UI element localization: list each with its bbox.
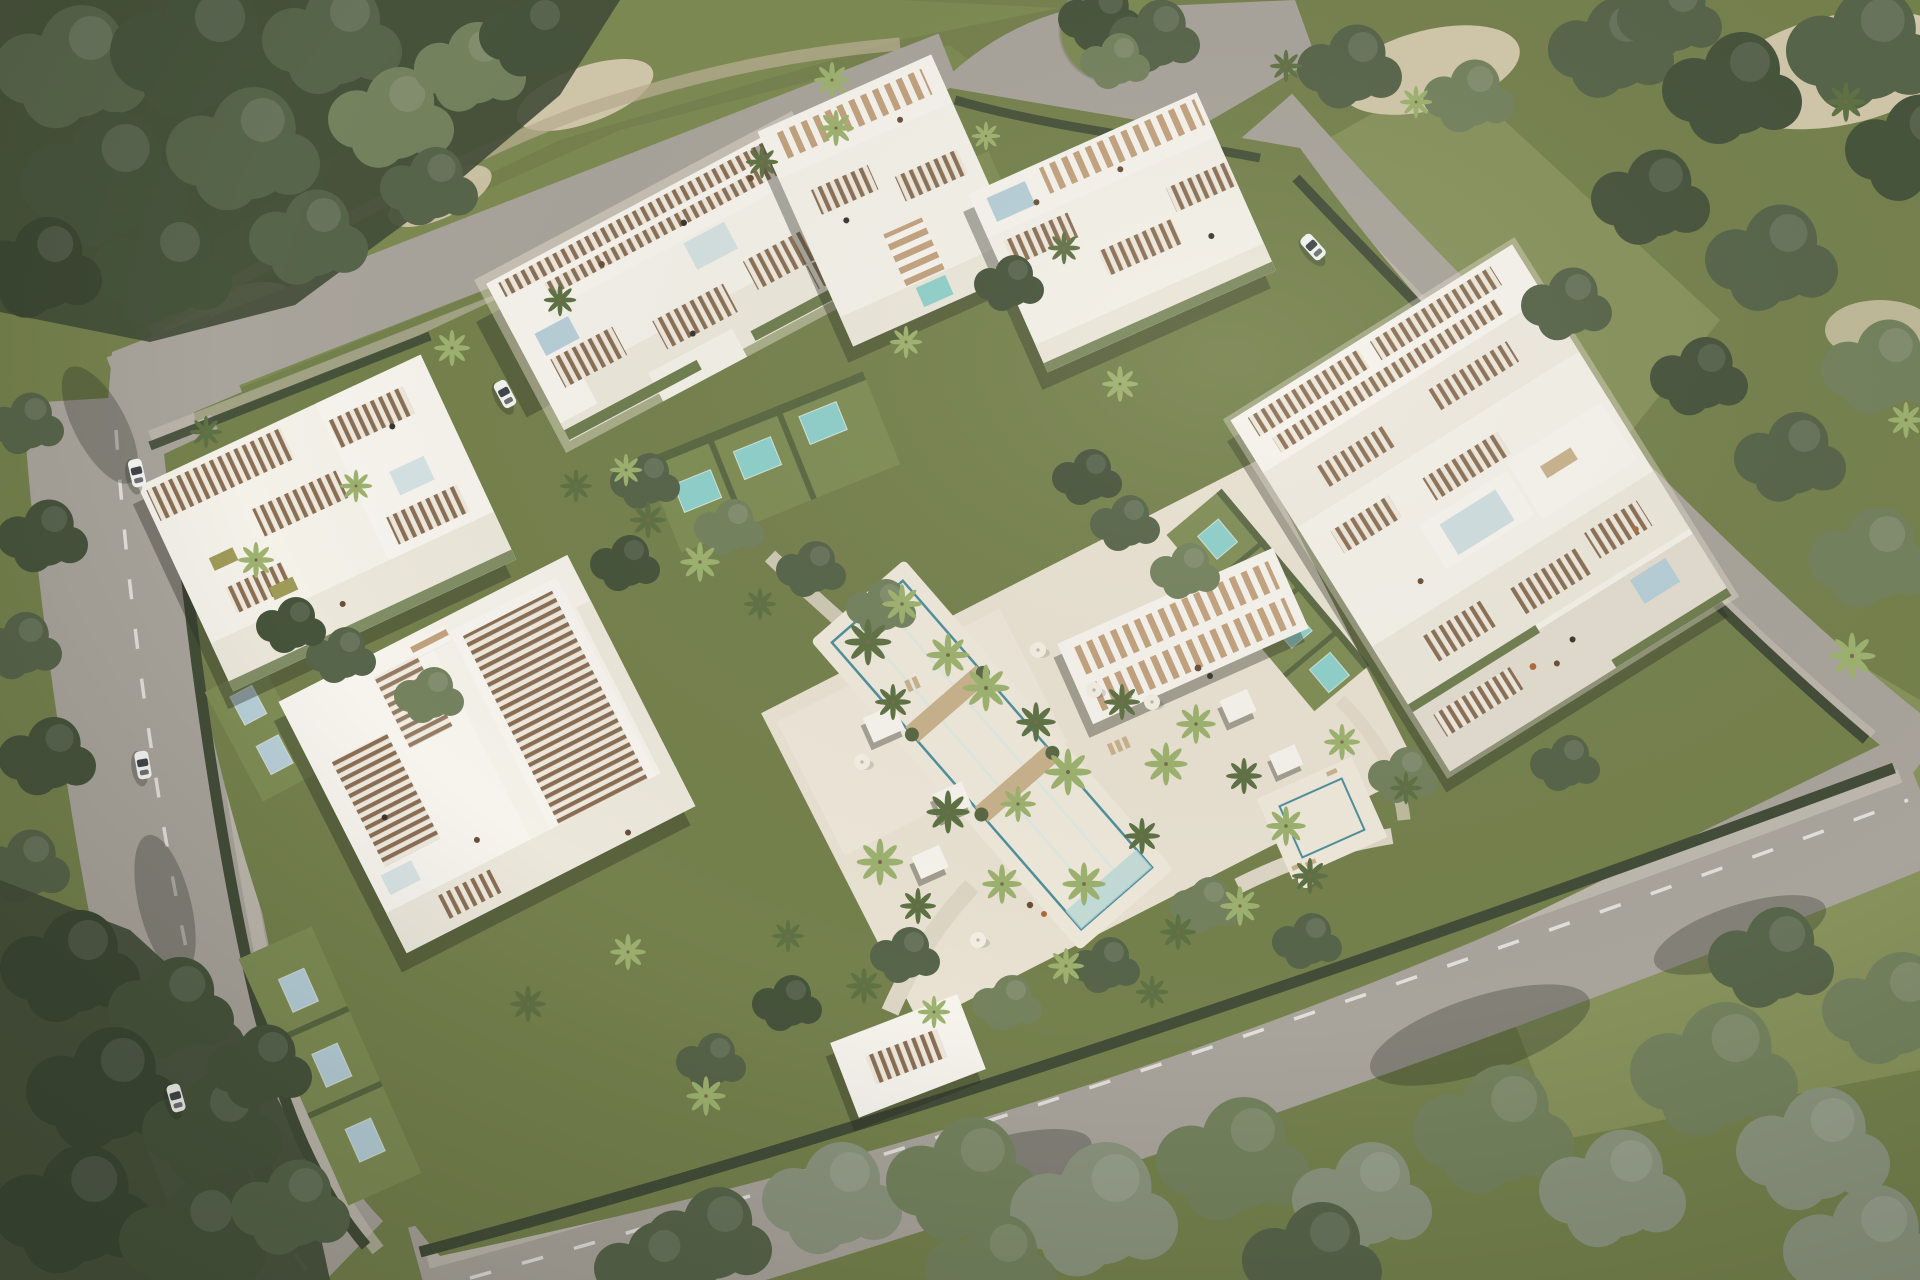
scene-canvas: Aerial render of a modern white luxury a… [0, 0, 1920, 1280]
light-vignette [0, 0, 1920, 1280]
aerial-render: Aerial render of a modern white luxury a… [0, 0, 1920, 1280]
